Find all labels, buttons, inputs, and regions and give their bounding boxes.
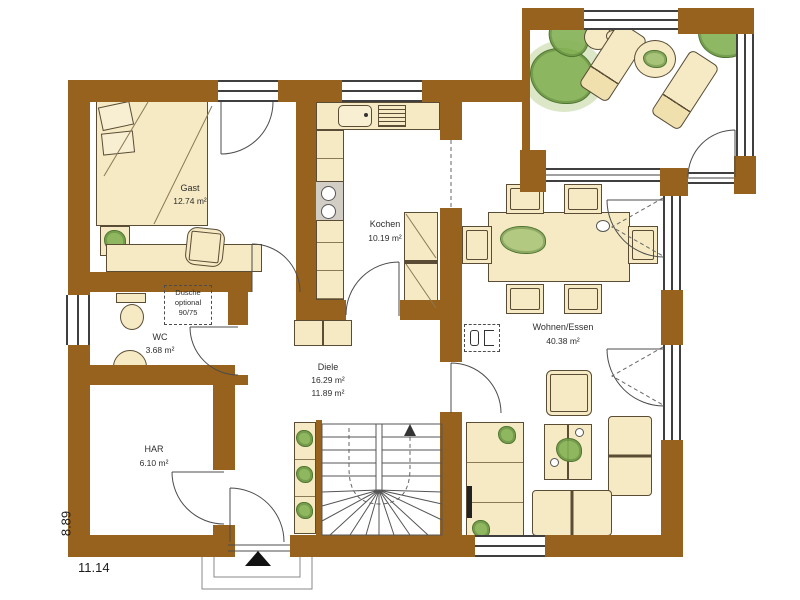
plant-icon	[498, 426, 516, 444]
wall	[678, 8, 754, 34]
chair-icon	[506, 284, 544, 314]
terrace-door-threshold	[688, 172, 734, 184]
burner-icon	[321, 204, 336, 219]
plant-icon	[296, 502, 313, 519]
tv-icon	[467, 486, 472, 518]
cup-icon	[550, 458, 559, 467]
desk-icon	[106, 244, 262, 272]
plant-icon	[643, 50, 667, 68]
floor-plan: Gast 12.74 m² Kochen 10.19 m² WC 3.68 m²…	[0, 0, 800, 600]
room-area-wc: 3.68 m²	[130, 345, 190, 355]
wall	[520, 150, 546, 192]
dusche-label: Dusche optional 90/75	[164, 288, 212, 318]
chair-icon	[564, 284, 602, 314]
room-label-har: HAR	[114, 444, 194, 455]
entrance-arrow-icon	[245, 551, 271, 566]
wall	[400, 300, 462, 320]
dimension-width: 11.14	[78, 560, 138, 575]
window-living-right-2	[663, 345, 681, 440]
window-terrace-top	[584, 10, 678, 30]
chair-icon	[462, 226, 492, 264]
wall	[68, 535, 228, 557]
window-living-right-1	[663, 196, 681, 290]
room-area2-diele: 11.89 m²	[288, 388, 368, 398]
wall	[68, 365, 235, 385]
dusche-line1: Dusche	[164, 288, 212, 298]
chair-icon	[184, 226, 226, 268]
dusche-line3: 90/75	[164, 308, 212, 318]
wall	[296, 102, 316, 320]
wall	[660, 168, 688, 196]
plant-icon	[296, 466, 313, 483]
window-terrace-right	[736, 34, 754, 156]
burner-icon	[321, 186, 336, 201]
wall	[440, 102, 462, 140]
room-area-har: 6.10 m²	[114, 458, 194, 468]
wall	[228, 292, 248, 325]
room-label-diele: Diele	[288, 362, 368, 373]
wall	[68, 80, 90, 295]
window-wc	[66, 295, 90, 345]
wardrobe-icon	[294, 320, 352, 346]
wall	[278, 80, 342, 102]
toilet-icon	[116, 293, 146, 303]
wall	[440, 208, 462, 362]
fireplace-glyph	[470, 330, 479, 346]
wall	[68, 272, 252, 292]
window-living-bottom	[475, 535, 545, 557]
dusche-line2: optional	[164, 298, 212, 308]
pillow-icon	[101, 130, 135, 155]
wall	[734, 156, 756, 194]
wall	[661, 290, 683, 345]
room-label-kochen: Kochen	[345, 219, 425, 230]
wall	[316, 420, 322, 535]
faucet-dot	[364, 113, 368, 117]
sofa-icon	[608, 416, 652, 496]
cup-icon	[575, 428, 584, 437]
chair-icon	[564, 184, 602, 214]
toilet-icon	[120, 304, 144, 330]
window-kitchen	[342, 80, 422, 102]
sofa-icon	[532, 490, 612, 536]
room-area-kochen: 10.19 m²	[345, 233, 425, 243]
chair-icon	[628, 226, 658, 264]
wall	[290, 535, 475, 557]
wall	[545, 535, 683, 557]
room-area-diele: 16.29 m²	[288, 375, 368, 385]
window-gast	[218, 80, 278, 102]
drainer-icon	[378, 105, 406, 127]
room-area-wohnen: 40.38 m²	[493, 336, 633, 346]
room-area-gast: 12.74 m²	[150, 196, 230, 206]
room-label-wc: WC	[130, 332, 190, 343]
room-label-gast: Gast	[150, 183, 230, 194]
room-label-wohnen: Wohnen/Essen	[493, 322, 633, 333]
wall	[213, 385, 235, 470]
dimension-depth: 8.89	[59, 502, 74, 546]
glass-wall-dining-terrace	[546, 168, 660, 182]
plant-icon	[296, 430, 313, 447]
armchair-icon	[546, 370, 592, 416]
wall	[422, 80, 530, 102]
plant-icon	[556, 438, 582, 462]
wall	[68, 80, 218, 102]
wall	[522, 8, 584, 30]
wall	[522, 30, 530, 152]
plate-icon	[596, 220, 610, 232]
stair-arrow-icon	[404, 424, 416, 436]
